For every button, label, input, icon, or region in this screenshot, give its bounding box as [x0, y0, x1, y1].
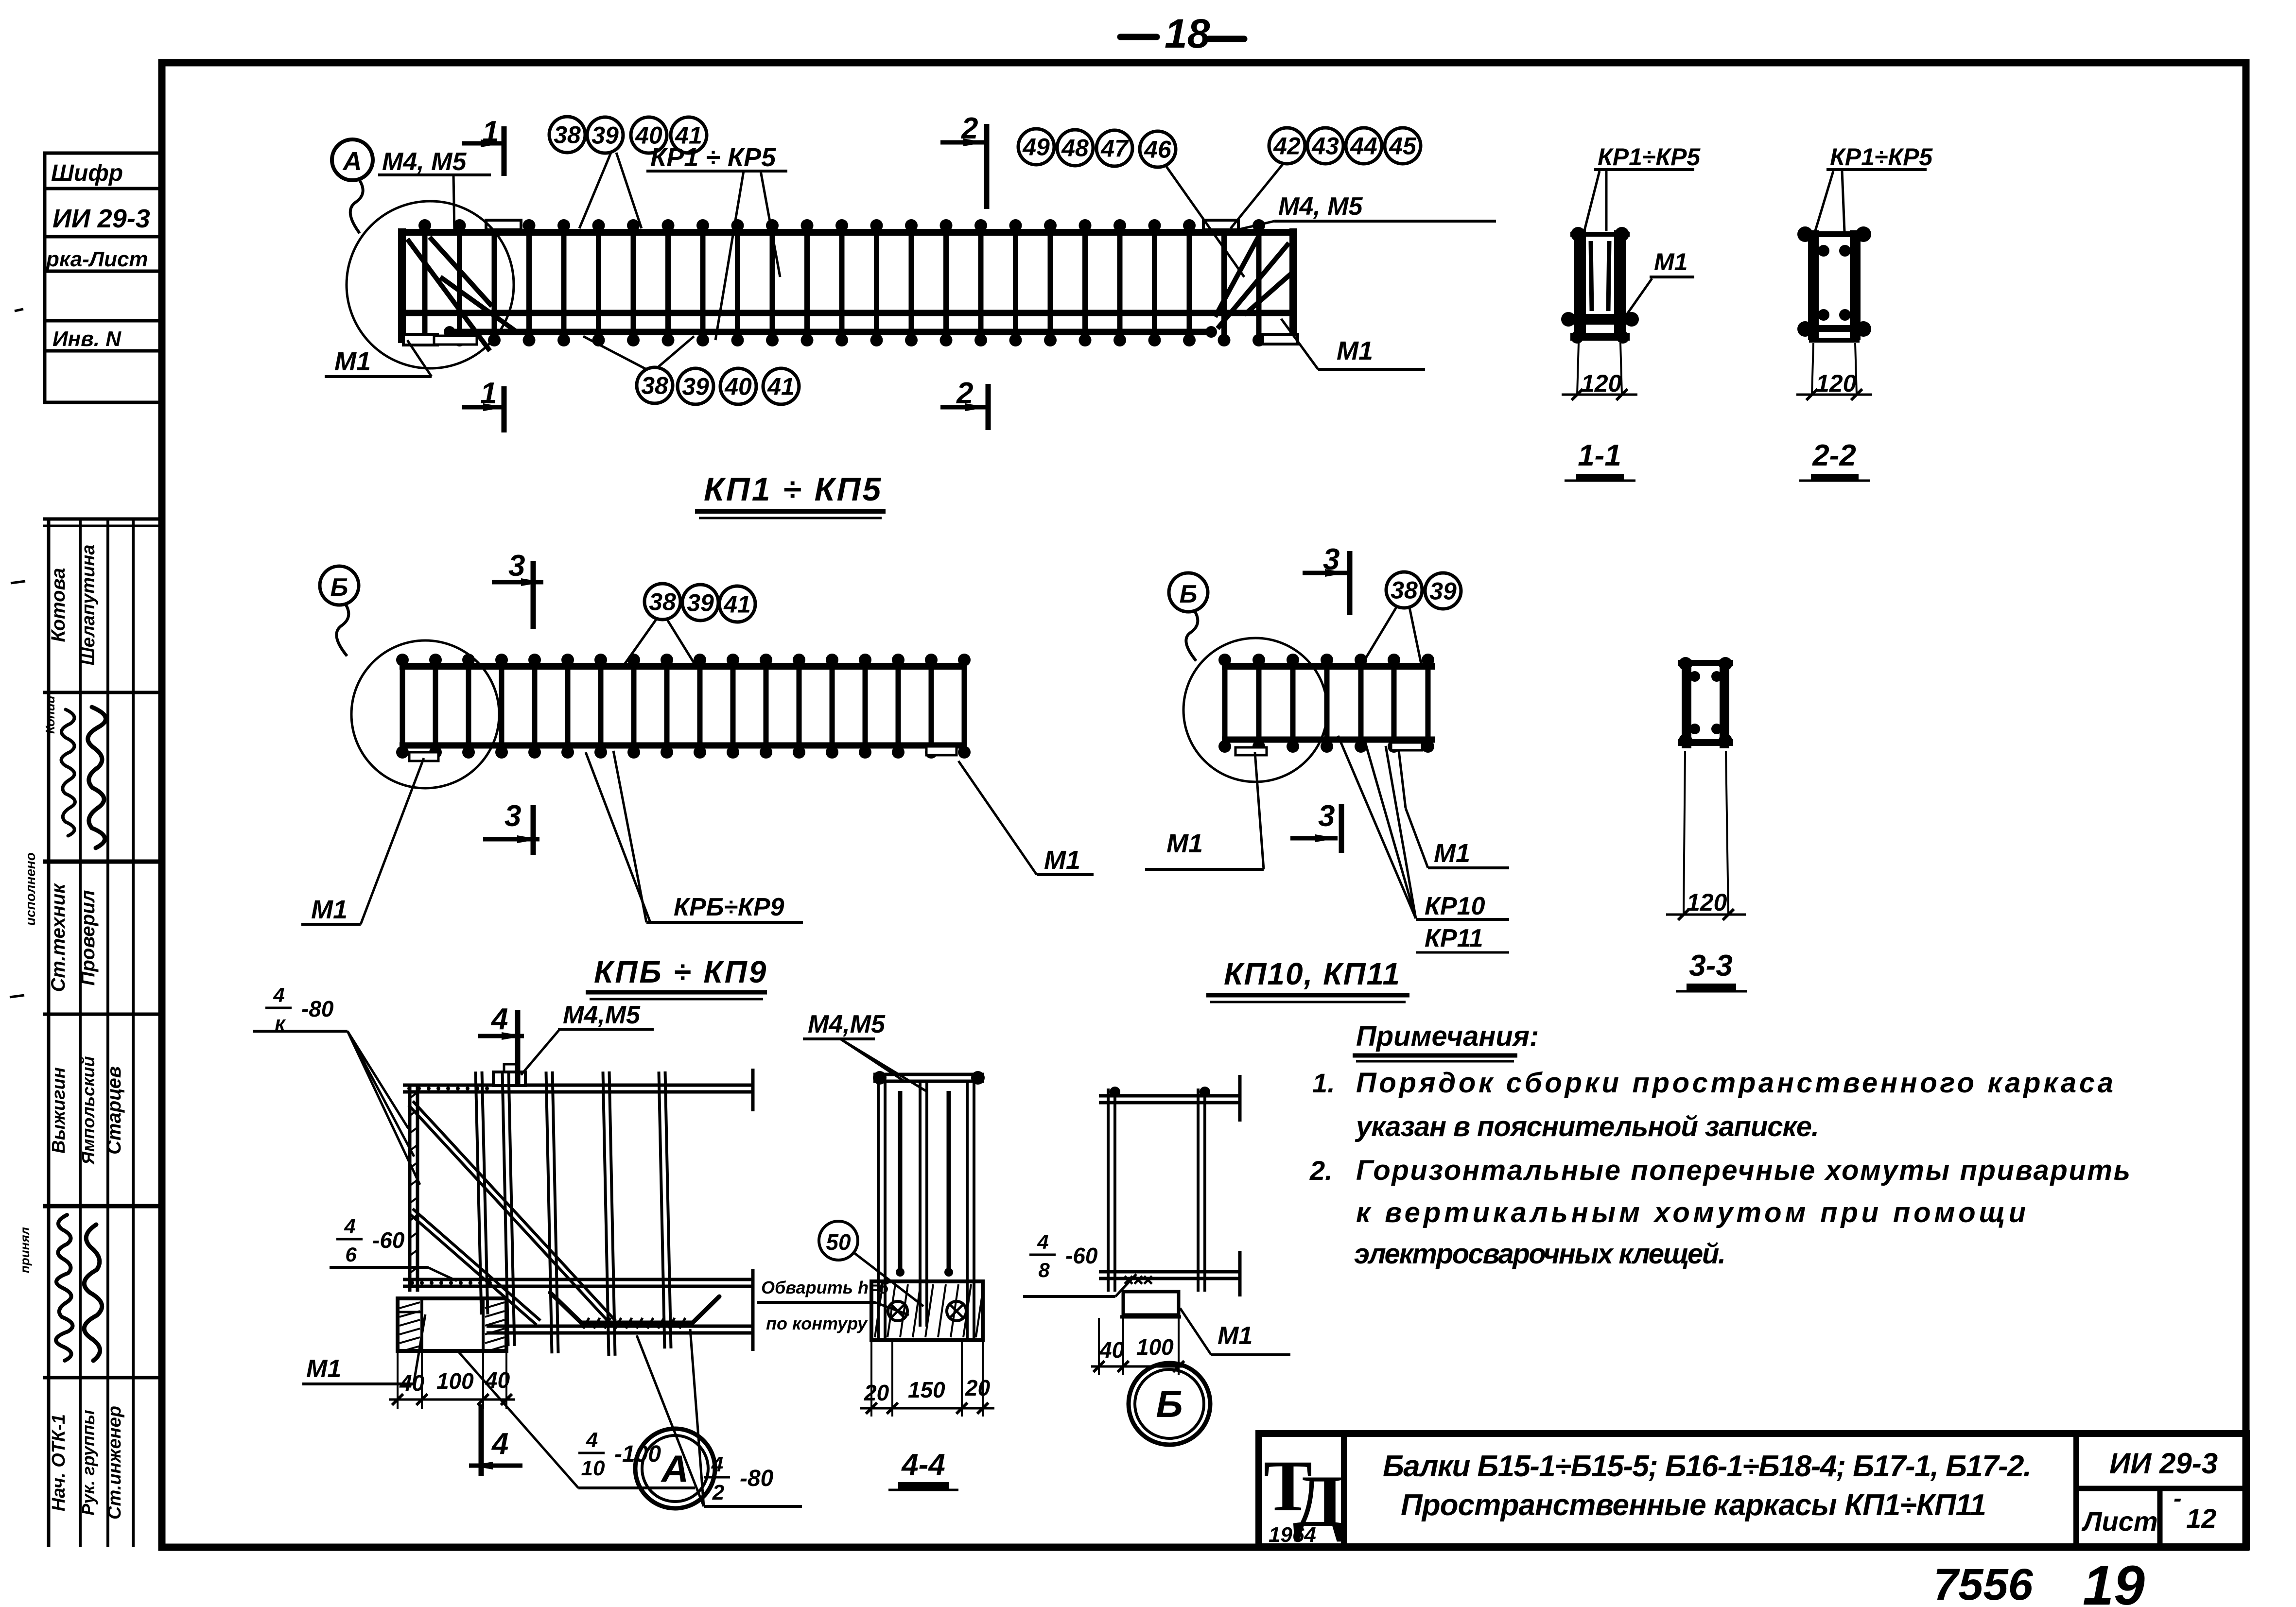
svg-text:ИИ 29-3: ИИ 29-3	[52, 204, 150, 233]
svg-text:Шелапутина: Шелапутина	[78, 544, 99, 665]
svg-text:-60: -60	[1065, 1243, 1098, 1268]
svg-text:Ст.инженер: Ст.инженер	[104, 1406, 125, 1520]
svg-text:3: 3	[1318, 799, 1335, 833]
svg-text:М4, М5: М4, М5	[382, 148, 467, 176]
svg-text:19: 19	[2083, 1555, 2145, 1607]
svg-text:150: 150	[908, 1377, 945, 1402]
svg-text:38: 38	[554, 121, 581, 149]
svg-text:40: 40	[1099, 1337, 1125, 1363]
svg-text:Примечания:: Примечания:	[1356, 1020, 1539, 1052]
svg-text:КП1 ÷ КП5: КП1 ÷ КП5	[704, 471, 883, 508]
svg-text:3: 3	[504, 799, 521, 833]
svg-text:Ст.техник: Ст.техник	[48, 883, 69, 992]
svg-text:40: 40	[485, 1367, 510, 1393]
svg-text:18: 18	[1165, 11, 1210, 56]
svg-text:М1: М1	[311, 895, 348, 924]
svg-text:39: 39	[591, 122, 619, 149]
svg-text:Пространственные каркасы КП1÷К: Пространственные каркасы КП1÷КП11	[1401, 1488, 1986, 1522]
svg-text:Проверил: Проверил	[77, 890, 99, 985]
svg-text:3-3: 3-3	[1689, 949, 1733, 983]
svg-text:41: 41	[767, 373, 795, 400]
svg-text:44: 44	[1350, 133, 1377, 160]
svg-text:43: 43	[1311, 133, 1339, 160]
svg-text:-: -	[2174, 1485, 2182, 1512]
svg-text:рка-Лист: рка-Лист	[46, 247, 148, 271]
svg-text:41: 41	[723, 591, 751, 618]
svg-text:М1: М1	[334, 347, 371, 376]
svg-text:М1: М1	[1434, 839, 1470, 868]
svg-text:Шифр: Шифр	[51, 160, 123, 186]
svg-text:42: 42	[1273, 133, 1301, 160]
svg-text:45: 45	[1389, 133, 1417, 160]
svg-text:6: 6	[345, 1243, 357, 1266]
svg-text:-60: -60	[372, 1227, 405, 1253]
svg-text:принял: принял	[17, 1227, 32, 1273]
svg-text:120: 120	[1687, 889, 1727, 916]
svg-text:исполнено: исполнено	[23, 852, 38, 926]
svg-text:1-1: 1-1	[1578, 439, 1621, 472]
svg-text:100: 100	[1136, 1334, 1174, 1360]
svg-text:КР1÷КР5: КР1÷КР5	[1830, 143, 1933, 171]
svg-text:39: 39	[1429, 578, 1457, 605]
svg-text:Выжигин: Выжигин	[49, 1067, 69, 1154]
svg-text:46: 46	[1144, 136, 1172, 163]
svg-text:20: 20	[965, 1375, 991, 1400]
svg-text:38: 38	[1391, 577, 1418, 604]
svg-text:38: 38	[649, 588, 676, 616]
svg-text:КР11: КР11	[1425, 924, 1483, 952]
svg-text:М1: М1	[1166, 829, 1203, 858]
svg-text:4: 4	[490, 1002, 508, 1036]
svg-text:М4,М5: М4,М5	[808, 1010, 886, 1038]
svg-text:ИИ 29-3: ИИ 29-3	[2109, 1447, 2218, 1480]
svg-text:КР1÷КР5: КР1÷КР5	[1598, 143, 1701, 171]
svg-text:4: 4	[273, 984, 284, 1006]
svg-text:100: 100	[436, 1368, 474, 1394]
svg-text:КП10, КП11: КП10, КП11	[1224, 956, 1401, 991]
svg-text:М1: М1	[1044, 846, 1080, 875]
svg-text:120: 120	[1581, 370, 1622, 397]
svg-text:10: 10	[581, 1456, 605, 1480]
svg-text:47: 47	[1100, 135, 1129, 162]
svg-text:7556: 7556	[1933, 1560, 2033, 1607]
svg-text:2-2: 2-2	[1812, 439, 1856, 472]
svg-text:Балки Б15-1÷Б15-5; Б16-1÷Б18-4: Балки Б15-1÷Б15-5; Б16-1÷Б18-4; Б17-1, Б…	[1383, 1450, 2032, 1483]
svg-text:50: 50	[826, 1229, 851, 1255]
svg-text:Б: Б	[1180, 580, 1198, 608]
svg-text:38: 38	[641, 372, 668, 399]
svg-text:электросварочных клещей.: электросварочных клещей.	[1354, 1238, 1728, 1270]
svg-text:4: 4	[491, 1427, 508, 1461]
svg-text:Б: Б	[1156, 1382, 1183, 1425]
svg-text:КРБ÷КР9: КРБ÷КР9	[674, 893, 784, 921]
svg-text:2.: 2.	[1309, 1155, 1333, 1186]
svg-text:8: 8	[1038, 1259, 1050, 1281]
svg-text:39: 39	[682, 373, 709, 400]
svg-text:4: 4	[344, 1215, 355, 1238]
svg-text:Б: Б	[330, 573, 348, 602]
svg-text:М4, М5: М4, М5	[1278, 192, 1363, 221]
svg-text:Инв. N: Инв. N	[52, 327, 122, 351]
svg-text:Порядок сборки пространственно: Порядок сборки пространственного каркаса	[1356, 1067, 2117, 1099]
svg-text:4: 4	[1037, 1230, 1048, 1253]
svg-text:-80: -80	[740, 1466, 774, 1491]
svg-text:Котова: Котова	[48, 568, 69, 642]
svg-text:39: 39	[687, 589, 714, 617]
svg-text:Старцев: Старцев	[104, 1066, 125, 1155]
svg-text:4-4: 4-4	[901, 1448, 945, 1482]
svg-text:40: 40	[724, 373, 752, 400]
svg-text:49: 49	[1022, 134, 1050, 161]
svg-text:по контуру: по контуру	[766, 1313, 868, 1333]
svg-text:КР10: КР10	[1425, 892, 1485, 920]
svg-text:48: 48	[1061, 135, 1089, 162]
svg-text:А: А	[342, 147, 362, 176]
svg-text:Ямпольский: Ямпольский	[78, 1056, 98, 1165]
svg-text:Лист: Лист	[2081, 1506, 2158, 1537]
svg-text:КПБ ÷ КП9: КПБ ÷ КП9	[594, 954, 768, 989]
svg-text:Рук. группы: Рук. группы	[78, 1410, 98, 1516]
svg-text:1964: 1964	[1269, 1523, 1316, 1547]
svg-text:3: 3	[508, 549, 525, 583]
svg-text:к вертикальным хомутом при пом: к вертикальным хомутом при помощи	[1356, 1197, 2029, 1228]
svg-text:-80: -80	[301, 996, 334, 1021]
svg-text:КР1 ÷ КР5: КР1 ÷ КР5	[650, 143, 776, 172]
svg-text:Горизонтальные поперечные хому: Горизонтальные поперечные хомуты привари…	[1356, 1155, 2134, 1186]
svg-text:М1: М1	[306, 1355, 341, 1383]
svg-text:Копии: Копии	[43, 695, 57, 734]
svg-text:М4,М5: М4,М5	[563, 1001, 641, 1029]
svg-text:А: А	[661, 1447, 689, 1490]
svg-text:указан в пояснительной записке: указан в пояснительной записке.	[1355, 1111, 1823, 1142]
svg-text:12: 12	[2186, 1503, 2216, 1534]
svg-text:1.: 1.	[1312, 1068, 1335, 1098]
svg-text:М1: М1	[1654, 248, 1687, 276]
svg-text:Нач. ОТК-1: Нач. ОТК-1	[49, 1414, 69, 1511]
svg-text:120: 120	[1816, 370, 1857, 397]
svg-text:М1: М1	[1337, 336, 1373, 365]
svg-text:4: 4	[586, 1428, 598, 1452]
svg-text:М1: М1	[1218, 1322, 1252, 1350]
svg-text:20: 20	[864, 1380, 889, 1405]
